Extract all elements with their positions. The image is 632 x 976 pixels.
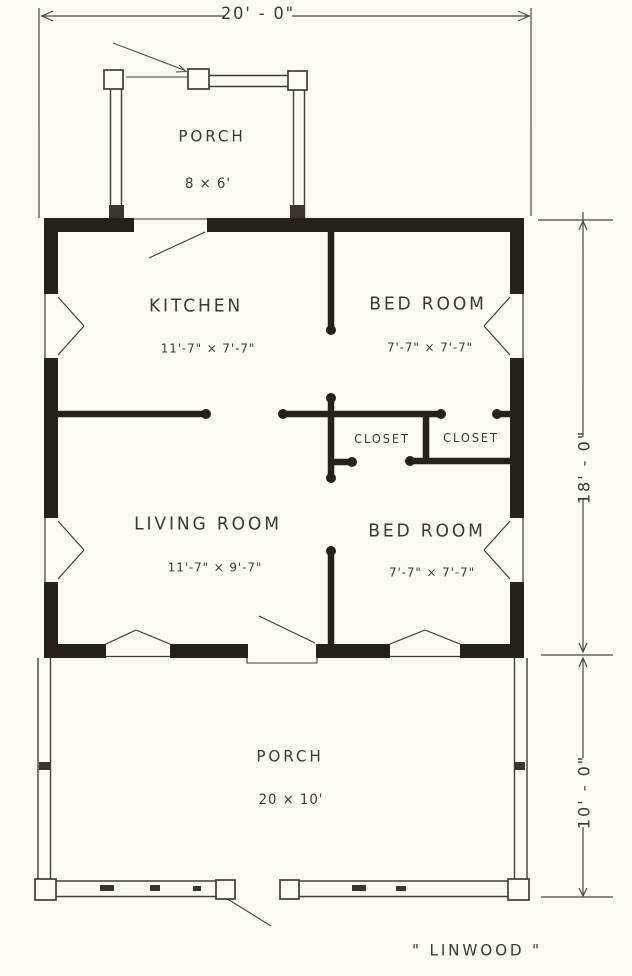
porch-post-foot	[109, 205, 124, 218]
floor-plan-sheet: 20' - 0" 18' - 0" 10' - 0" PORCH 8 × 6' …	[0, 0, 632, 976]
porch-entry-leader-line	[113, 43, 186, 72]
door-symbols	[134, 219, 317, 663]
porch-post	[288, 71, 307, 90]
front-door-opening	[248, 643, 316, 659]
porch-post	[508, 879, 529, 900]
wall-openings	[43, 217, 525, 659]
railing-hatch-marks	[39, 762, 525, 891]
window-symbols	[45, 294, 523, 657]
porch-post	[216, 880, 235, 899]
porch-post	[104, 70, 123, 89]
porch-post	[35, 879, 56, 900]
right-upper-dimension-line	[538, 212, 613, 652]
right-lower-dimension-line	[541, 655, 613, 897]
floor-plan-drawing	[0, 0, 632, 976]
porch-post-foot	[290, 205, 305, 218]
bottom-porch-railing	[35, 658, 529, 900]
porch-post	[188, 69, 209, 89]
porch-post	[280, 880, 299, 899]
top-dimension-line	[39, 8, 531, 218]
top-porch-railing	[104, 69, 307, 218]
steps-leader-line	[226, 898, 271, 926]
interior-walls	[58, 232, 511, 644]
exterior-walls	[44, 218, 524, 658]
